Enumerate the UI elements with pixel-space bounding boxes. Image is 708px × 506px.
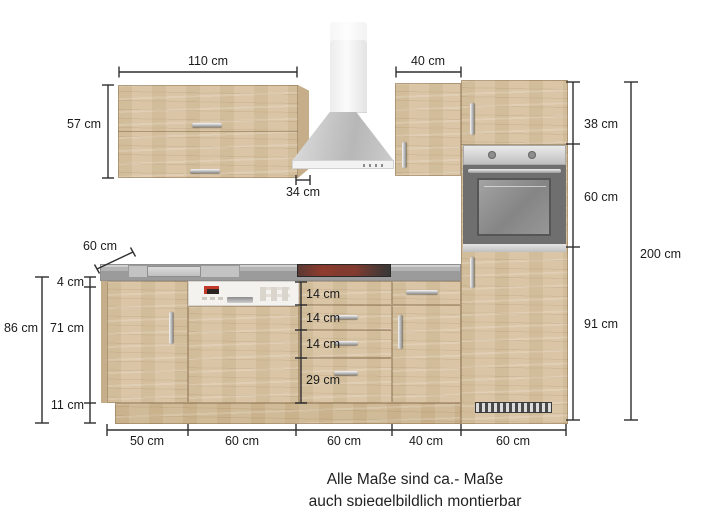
kitchen-dimension-diagram: 110 cm 57 cm 40 cm 34 cm 60 cm 38 cm 60 … <box>0 0 708 506</box>
footer-note-line1: Alle Maße sind ca.- Maße <box>327 471 504 489</box>
tall-cabinet <box>461 80 568 424</box>
label-total-height: 200 cm <box>640 247 681 261</box>
dishwasher-furniture-door <box>188 306 299 403</box>
oven-knob-right <box>528 151 536 159</box>
label-width-60c: 60 cm <box>496 434 530 448</box>
dishwasher-handle-recess <box>227 297 253 303</box>
label-base-front-height: 71 cm <box>50 321 84 335</box>
dishwasher-control-panel <box>188 281 299 306</box>
oven-control-panel <box>463 145 566 165</box>
wall-cabinet-40-handle <box>402 142 406 168</box>
base-cabinet-40-door <box>392 305 461 403</box>
label-plinth-height: 11 cm <box>51 398 84 412</box>
label-width-60a: 60 cm <box>225 434 259 448</box>
label-drawer-1: 14 cm <box>306 287 340 301</box>
footer-note-line2: auch spiegelbildlich montierbar <box>309 493 522 506</box>
label-drawer-4: 29 cm <box>306 373 340 387</box>
plinth <box>115 403 461 424</box>
sink <box>128 265 240 278</box>
wall-cabinet-110 <box>118 85 298 178</box>
label-drawer-3: 14 cm <box>306 337 340 351</box>
label-tall-top-section: 38 cm <box>584 117 618 131</box>
oven-door <box>463 165 566 244</box>
hood-front-lip <box>292 160 394 169</box>
oven-window <box>477 178 551 236</box>
hood-control-buttons <box>363 164 385 167</box>
label-width-60b: 60 cm <box>327 434 361 448</box>
label-worktop-depth: 60 cm <box>83 239 117 253</box>
tall-cabinet-top-door-handle <box>470 103 474 135</box>
dishwasher-display <box>204 286 219 294</box>
base-cabinet-40-drawer-handle <box>406 290 438 294</box>
oven-window-reflection <box>484 186 546 187</box>
label-tall-bottom-section: 91 cm <box>584 317 618 331</box>
wall-cabinet-top-door-handle <box>192 123 222 127</box>
label-wall-cabinet-width: 110 cm <box>188 54 228 68</box>
label-wall-cabinet-depth: 34 cm <box>286 185 320 199</box>
label-drawer-2: 14 cm <box>306 311 340 325</box>
label-upper-cabinet-40-width: 40 cm <box>411 54 445 68</box>
base-cabinet-40-drawer <box>392 281 461 305</box>
wall-cabinet-door-seam <box>118 131 298 132</box>
oven-door-handle <box>468 169 561 173</box>
wall-cabinet-bottom-door-handle <box>190 169 220 173</box>
wall-cabinet-40 <box>395 83 461 176</box>
sink-basin <box>147 266 201 277</box>
label-width-50: 50 cm <box>130 434 164 448</box>
label-width-40: 40 cm <box>409 434 443 448</box>
label-base-total-height: 86 cm <box>4 321 38 335</box>
oven-bottom-strip <box>463 244 566 252</box>
hood-chimney <box>330 22 367 113</box>
plinth-vent-grille <box>475 402 552 413</box>
label-tall-oven-section: 60 cm <box>584 190 618 204</box>
base-cabinet-40-door-handle <box>398 315 402 349</box>
tall-cabinet-bottom-door-handle <box>470 257 474 288</box>
base-cabinet-50-handle <box>169 312 173 344</box>
base-cabinet-50-door <box>107 281 188 403</box>
label-wall-cabinet-height: 57 cm <box>67 117 101 131</box>
cooktop <box>297 264 391 277</box>
dishwasher-buttons-left <box>202 297 224 300</box>
dishwasher-buttons-right <box>260 287 290 301</box>
label-worktop-thickness: 4 cm <box>57 275 84 289</box>
oven-knob-left <box>488 151 496 159</box>
